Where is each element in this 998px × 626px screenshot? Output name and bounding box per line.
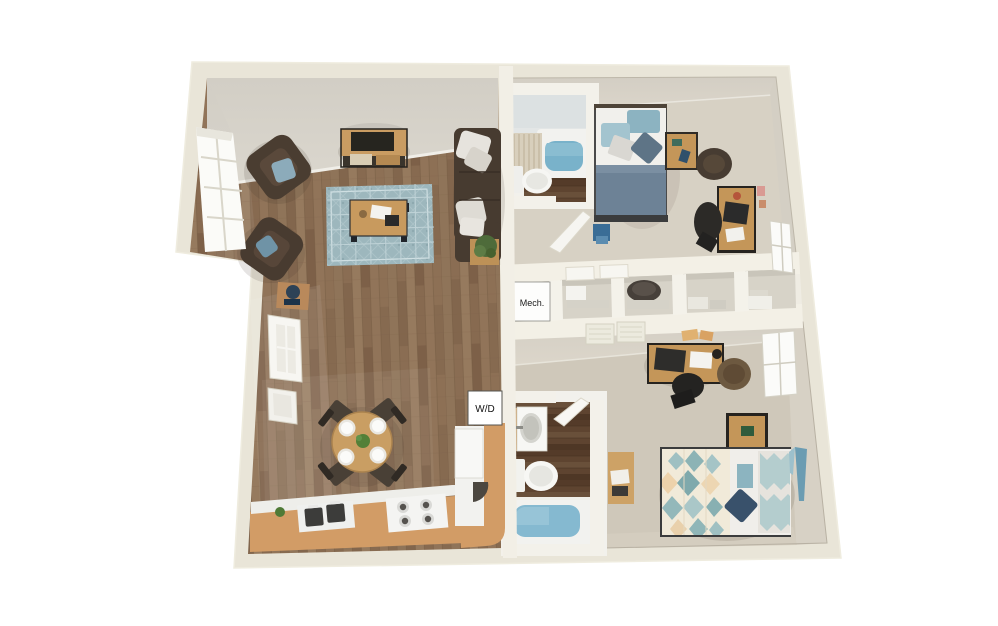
svg-text:Mech.: Mech.	[520, 298, 545, 308]
svg-text:W/D: W/D	[475, 404, 494, 415]
